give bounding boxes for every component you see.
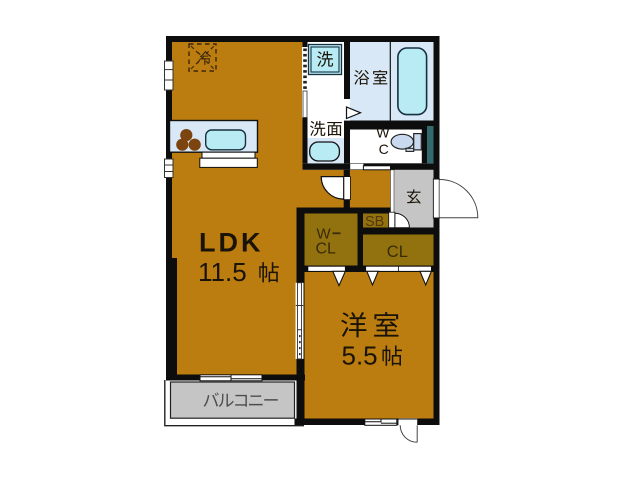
svg-text:SB: SB <box>365 214 384 230</box>
svg-text:CL: CL <box>316 240 337 257</box>
svg-text:11.5: 11.5 <box>198 257 247 287</box>
svg-text:LDK: LDK <box>199 228 264 258</box>
svg-text:CL: CL <box>387 243 408 261</box>
svg-text:W: W <box>376 125 390 141</box>
svg-text:C: C <box>379 141 389 157</box>
svg-text:5.5: 5.5 <box>342 341 378 371</box>
